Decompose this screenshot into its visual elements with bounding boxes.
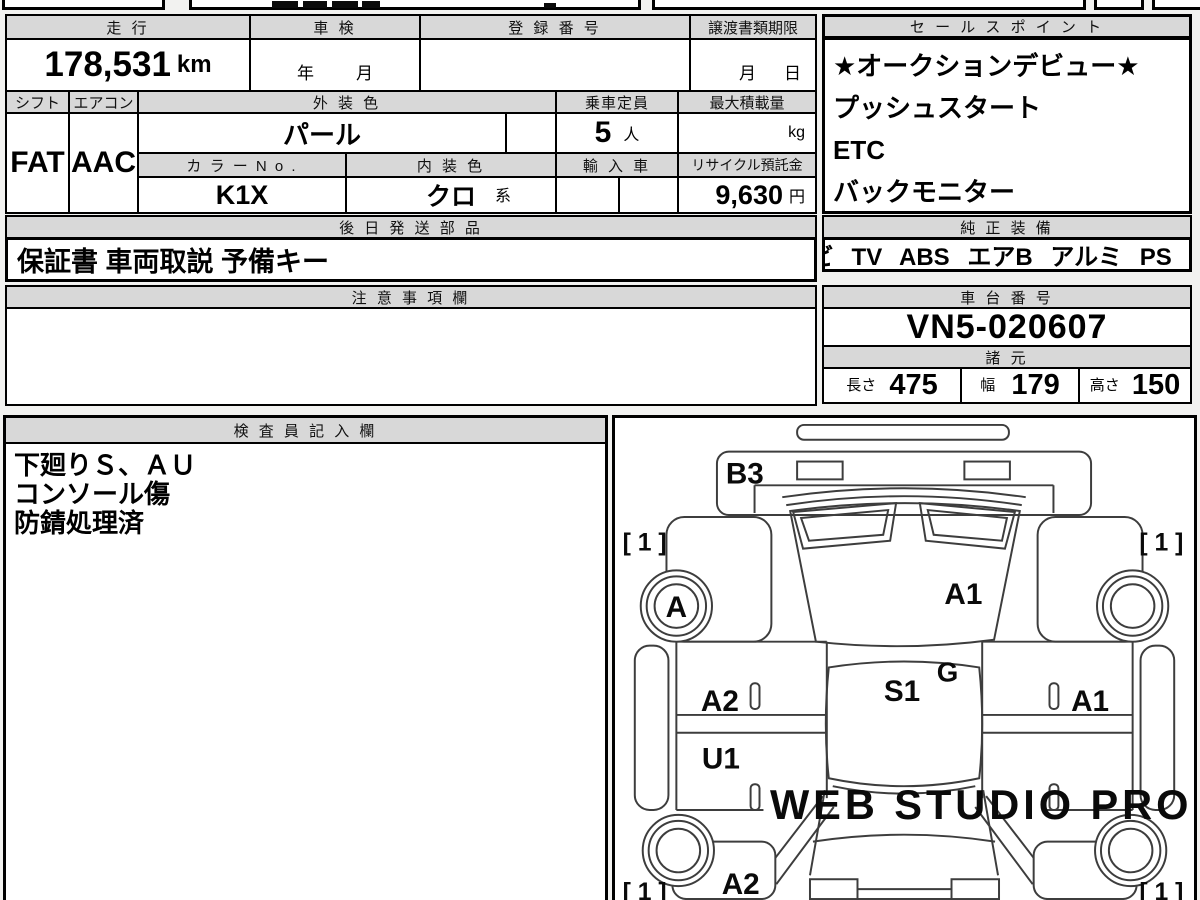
corner-mark-front-left: [ 1 ] bbox=[623, 530, 667, 557]
sales-point-item: プッシュスタート bbox=[833, 87, 1041, 129]
corner-mark-rear-left: [ 1 ] bbox=[623, 879, 667, 900]
color-no-header: カ ラ ー N o . bbox=[137, 152, 347, 178]
registration-header: 登 録 番 号 bbox=[419, 14, 691, 40]
sales-point-item: ★オークションデビュー★ bbox=[833, 45, 1140, 87]
transfer-deadline-header: 譲渡書類期限 bbox=[689, 14, 817, 40]
capacity-value-cell: 5 人 bbox=[555, 112, 679, 154]
top-text-remnant bbox=[272, 1, 298, 8]
sales-point-item: バックモニター bbox=[833, 171, 1015, 213]
maxload-header: 最大積載量 bbox=[677, 90, 817, 114]
sales-point-item: ETC bbox=[833, 129, 885, 171]
interior-color-header: 内 装 色 bbox=[345, 152, 557, 178]
transfer-month-label: 月 bbox=[739, 59, 756, 84]
sales-points-body: ★オークションデビュー★ プッシュスタート ETC バックモニター bbox=[822, 37, 1192, 214]
car-damage-diagram: B3 A A1 G S1 A2 U1 A1 A2 [ 1 ] [ 1 ] [ 1… bbox=[615, 418, 1194, 900]
interior-color-value: クロ bbox=[426, 177, 476, 213]
registration-value-cell bbox=[419, 38, 691, 92]
mileage-value-cell: 178,531 km bbox=[5, 38, 251, 92]
exterior-color-header: 外 装 色 bbox=[137, 90, 557, 114]
chassis-number-value: VN5-020607 bbox=[822, 307, 1192, 347]
inspector-note-line: 下廻りＳ、ＡＵ bbox=[14, 451, 196, 480]
damage-label-hood: A1 bbox=[944, 578, 982, 611]
inspector-notes-header: 検 査 員 記 入 欄 bbox=[6, 418, 605, 444]
top-stub-1 bbox=[2, 0, 165, 10]
spec-height-cell: 高さ 150 bbox=[1078, 367, 1192, 404]
caution-header: 注 意 事 項 欄 bbox=[5, 285, 817, 309]
spec-length-value: 475 bbox=[889, 369, 937, 402]
spec-height-value: 150 bbox=[1132, 369, 1180, 402]
aircon-header: エアコン bbox=[68, 90, 139, 114]
top-text-remnant bbox=[332, 1, 358, 8]
aircon-value: AAC bbox=[68, 112, 139, 214]
mileage-unit: km bbox=[177, 51, 212, 79]
car-diagram-box: B3 A A1 G S1 A2 U1 A1 A2 [ 1 ] [ 1 ] [ 1… bbox=[612, 415, 1197, 900]
top-stub-5 bbox=[1152, 0, 1200, 10]
mileage-value: 178,531 bbox=[44, 45, 171, 85]
top-text-remnant bbox=[303, 1, 327, 8]
damage-label-left-rear-door: U1 bbox=[702, 742, 740, 775]
sales-points-header: セ ー ル ス ポ イ ン ト bbox=[822, 14, 1192, 39]
top-stub-3 bbox=[652, 0, 1086, 10]
inspection-year-label: 年 bbox=[297, 59, 314, 84]
chassis-number-header: 車 台 番 号 bbox=[822, 285, 1192, 309]
recycle-deposit-header: リサイクル預託金 bbox=[677, 152, 817, 178]
exterior-color-value: パール bbox=[137, 112, 507, 154]
capacity-header: 乗車定員 bbox=[555, 90, 679, 114]
spec-width-cell: 幅 179 bbox=[960, 367, 1080, 404]
spec-width-label: 幅 bbox=[980, 374, 995, 402]
exterior-color-subcell bbox=[505, 112, 557, 154]
spec-height-label: 高さ bbox=[1090, 374, 1120, 402]
inspector-note-line: 防錆処理済 bbox=[14, 509, 196, 538]
interior-color-suffix: 系 bbox=[495, 182, 511, 206]
transfer-day-label: 日 bbox=[784, 59, 801, 84]
corner-mark-rear-right: [ 1 ] bbox=[1139, 879, 1183, 900]
inspector-note-line: コンソール傷 bbox=[14, 480, 196, 509]
capacity-value: 5 bbox=[595, 116, 612, 150]
spec-length-label: 長さ bbox=[846, 374, 876, 402]
watermark-text: WEB STUDIO PRO bbox=[770, 781, 1192, 828]
import-value-cell-1 bbox=[555, 176, 620, 214]
inspector-notes-lines: 下廻りＳ、ＡＵ コンソール傷 防錆処理済 bbox=[6, 444, 204, 545]
import-value-cell-2 bbox=[618, 176, 679, 214]
import-header: 輸 入 車 bbox=[555, 152, 679, 178]
equipment-value: ナビ TV ABS エアB アルミ PS PW bbox=[822, 237, 1192, 272]
recycle-deposit-value-cell: 9,630 円 bbox=[677, 176, 817, 214]
top-stub-2 bbox=[189, 0, 641, 10]
later-parts-value: 保証書 車両取説 予備キー bbox=[5, 237, 817, 282]
top-stub-4 bbox=[1094, 0, 1144, 10]
car-outline bbox=[635, 425, 1174, 899]
recycle-deposit-value: 9,630 bbox=[715, 180, 783, 211]
mileage-header: 走 行 bbox=[5, 14, 251, 40]
caution-body bbox=[5, 307, 817, 406]
damage-label-cowl: G bbox=[937, 656, 959, 687]
damage-label-left-rear-quarter: A2 bbox=[722, 868, 760, 900]
damage-label-right-front-door: A1 bbox=[1071, 685, 1109, 718]
specs-header: 諸 元 bbox=[822, 345, 1192, 369]
shift-value: FAT bbox=[5, 112, 70, 214]
top-text-remnant bbox=[544, 3, 556, 8]
maxload-value-cell: kg bbox=[677, 112, 817, 154]
auction-sheet: 走 行 車 検 登 録 番 号 譲渡書類期限 178,531 km 年 月 月 … bbox=[0, 0, 1200, 900]
transfer-value-cell: 月 日 bbox=[689, 38, 817, 92]
top-text-remnant bbox=[362, 1, 380, 8]
color-no-value: K1X bbox=[137, 176, 347, 214]
inspection-month-label: 月 bbox=[356, 59, 373, 84]
damage-label-front-bumper: B3 bbox=[726, 457, 764, 490]
later-parts-header: 後 日 発 送 部 品 bbox=[5, 215, 817, 239]
interior-color-value-cell: クロ 系 bbox=[345, 176, 557, 214]
inspector-notes-box: 検 査 員 記 入 欄 下廻りＳ、ＡＵ コンソール傷 防錆処理済 bbox=[3, 415, 608, 900]
shift-header: シフト bbox=[5, 90, 70, 114]
spec-width-value: 179 bbox=[1011, 369, 1059, 402]
capacity-unit: 人 bbox=[623, 121, 639, 145]
inspection-value-cell: 年 月 bbox=[249, 38, 421, 92]
equipment-header: 純 正 装 備 bbox=[822, 215, 1192, 239]
damage-label-left-front-door: A2 bbox=[701, 685, 739, 718]
recycle-deposit-unit: 円 bbox=[789, 183, 805, 207]
damage-label-front-left-wheel: A bbox=[666, 591, 687, 624]
inspection-header: 車 検 bbox=[249, 14, 421, 40]
spec-length-cell: 長さ 475 bbox=[822, 367, 962, 404]
damage-label-roof: S1 bbox=[884, 675, 920, 708]
corner-mark-front-right: [ 1 ] bbox=[1139, 530, 1183, 557]
